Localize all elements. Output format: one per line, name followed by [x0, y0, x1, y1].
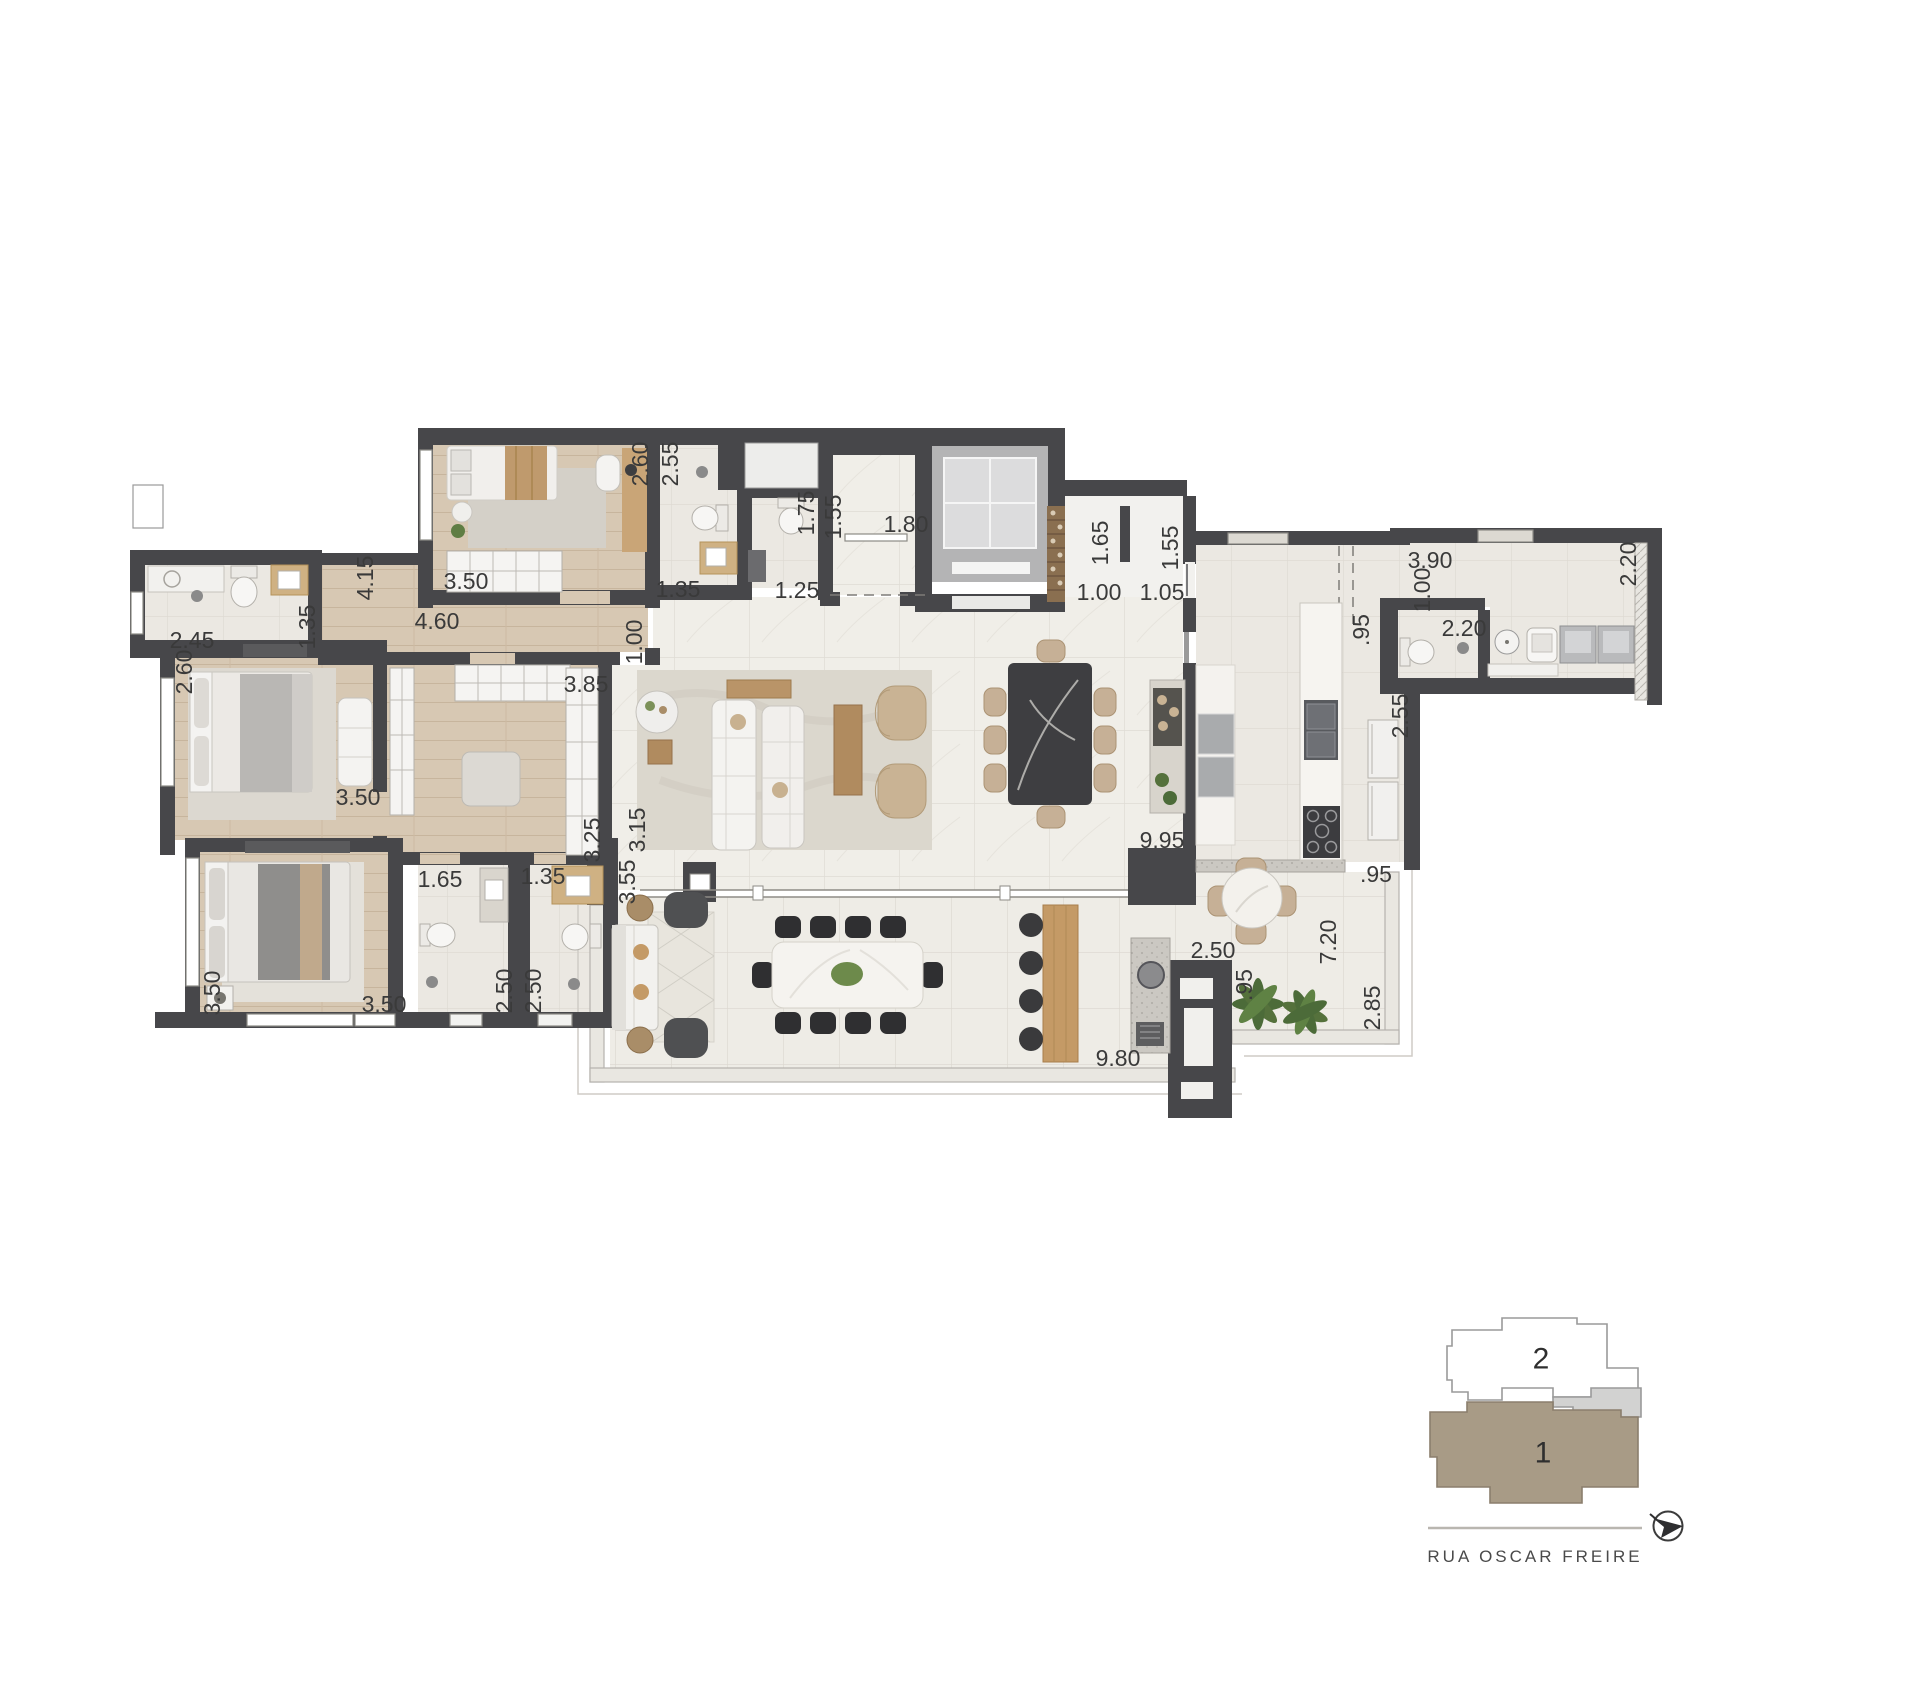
bed-throw — [300, 864, 322, 980]
outdoor-chair — [775, 1012, 801, 1034]
dim-label: 2.20 — [1615, 542, 1641, 587]
dim-label: 1.65 — [1087, 521, 1113, 566]
column-inset — [690, 874, 710, 890]
dim-label: 4.60 — [415, 608, 460, 634]
outdoor-chair — [845, 916, 871, 938]
pillow — [451, 450, 471, 471]
dim-label: 1.35 — [294, 605, 320, 650]
glass-partition — [1184, 632, 1189, 663]
dim-label: .95 — [1348, 614, 1374, 646]
street-name: RUA OSCAR FREIRE — [1427, 1547, 1642, 1566]
dim-label: 3.15 — [624, 808, 650, 853]
keyplan-unit-1-label: 1 — [1535, 1437, 1552, 1470]
bar-stool — [1019, 951, 1043, 975]
dim-label: 1.05 — [1140, 579, 1185, 605]
dim-label: 1.55 — [1157, 526, 1183, 571]
counter — [1196, 665, 1235, 845]
dim-label: 9.95 — [1140, 827, 1185, 853]
plant — [1155, 773, 1169, 787]
dim-label: 2.55 — [657, 442, 683, 487]
bbq-inset — [1181, 1082, 1213, 1099]
basin — [706, 548, 726, 566]
tv-dresser — [245, 841, 350, 853]
elevator-door — [952, 596, 1030, 609]
dining-chair — [984, 726, 1006, 754]
master-bedroom-furniture — [205, 841, 364, 1010]
living-room-furniture — [636, 670, 932, 850]
outdoor-chair — [810, 916, 836, 938]
dining-chair — [1094, 726, 1116, 754]
stool — [1198, 714, 1234, 754]
dim-label: 2.85 — [1359, 986, 1385, 1031]
shower-head — [696, 466, 708, 478]
dim-label: 3.25 — [579, 818, 605, 863]
dim-label: 1.00 — [1077, 579, 1122, 605]
keyplan-unit-2-label: 2 — [1533, 1343, 1550, 1376]
kitchen-sill — [1196, 860, 1345, 872]
toilet — [1408, 640, 1434, 664]
toilet — [427, 923, 455, 947]
armchair — [878, 686, 926, 740]
dim-label: 3.85 — [564, 671, 609, 697]
duct-shaft — [745, 443, 818, 488]
dim-label: 9.80 — [1096, 1045, 1141, 1071]
armchair — [878, 764, 926, 818]
outdoor-chair — [880, 916, 906, 938]
outdoor-chair — [810, 1012, 836, 1034]
round-table — [1222, 868, 1282, 928]
toilet — [562, 924, 588, 950]
outdoor-chair — [775, 916, 801, 938]
outdoor-chair — [845, 1012, 871, 1034]
bar-stool — [1019, 989, 1043, 1013]
sofa — [762, 706, 804, 848]
bbq-grill — [1138, 962, 1164, 988]
dim-label: 2.20 — [1442, 615, 1487, 641]
basin — [278, 571, 300, 589]
vanity-cabinet — [748, 550, 766, 582]
pillow — [633, 984, 649, 1000]
bar-stool — [1019, 1027, 1043, 1051]
keyplan: 2 1 RUA OSCAR FREIRE — [1427, 1318, 1683, 1566]
dim-label: 4.15 — [352, 556, 378, 601]
throw-pillow — [730, 714, 746, 730]
shower-head — [191, 590, 203, 602]
floor-plan-page: 2.45 1.35 2.60 4.15 4.60 3.50 2.60 2.55 … — [0, 0, 1920, 1692]
dining-chair — [984, 764, 1006, 792]
bbq-inset — [1184, 1008, 1213, 1066]
console-table — [727, 680, 791, 698]
plant — [1163, 791, 1177, 805]
elevator-handrail — [952, 562, 1030, 574]
pouf — [452, 502, 472, 522]
outdoor-chair — [880, 1012, 906, 1034]
dim-label: 2.55 — [1387, 694, 1413, 739]
bbq-inset — [1180, 978, 1213, 999]
dim-label: 1.80 — [884, 511, 929, 537]
dim-label: 2.50 — [520, 969, 546, 1014]
dining-chair — [1094, 688, 1116, 716]
dining-chair — [1037, 806, 1065, 828]
pillow — [633, 944, 649, 960]
shower-head — [426, 976, 438, 988]
dim-label: 2.50 — [491, 969, 517, 1014]
pillow — [451, 474, 471, 495]
dim-label: 1.00 — [1409, 568, 1435, 613]
toilet — [692, 506, 718, 530]
dim-label: 2.45 — [170, 627, 215, 653]
dining-chair — [1037, 640, 1065, 662]
pantry — [1047, 506, 1065, 602]
dim-label: 1.00 — [621, 620, 647, 665]
centerpiece — [831, 962, 863, 986]
tray-table — [648, 740, 672, 764]
basin — [485, 880, 503, 900]
vanity — [148, 566, 224, 592]
coffee-table — [834, 705, 862, 795]
dim-label: 2.60 — [627, 442, 653, 487]
toilet-cistern — [231, 566, 257, 578]
dim-label: 2.50 — [1191, 937, 1236, 963]
buffet-tray — [1153, 688, 1182, 746]
bar-stool — [1019, 913, 1043, 937]
bed-throw — [505, 446, 547, 500]
elevator — [932, 446, 1048, 609]
outdoor-chair — [921, 962, 943, 988]
dim-label: 1.55 — [820, 495, 846, 540]
laundry-counter — [1488, 664, 1558, 676]
outdoor-armchair — [664, 892, 708, 928]
round-side-table — [636, 691, 678, 733]
dim-label: 3.50 — [336, 784, 381, 810]
shower-head — [568, 978, 580, 990]
bed-blanket — [240, 674, 292, 792]
stool — [1198, 757, 1234, 797]
dim-label: 7.20 — [1315, 920, 1341, 965]
dim-label: 3.50 — [199, 971, 225, 1016]
dim-label: 3.50 — [362, 991, 407, 1017]
compass-icon — [1650, 1512, 1683, 1541]
basin — [566, 876, 590, 896]
dim-label: .95 — [1360, 861, 1392, 887]
bar-counter — [1043, 905, 1078, 1062]
dining-chair — [1094, 764, 1116, 792]
toilet-cistern — [590, 924, 601, 948]
plant — [451, 524, 465, 538]
dim-label: 3.50 — [444, 568, 489, 594]
throw-pillow — [772, 782, 788, 798]
toilet — [231, 577, 257, 607]
dining-chair — [984, 688, 1006, 716]
dim-label: .95 — [1231, 969, 1257, 1001]
bench — [338, 698, 372, 786]
dim-label: 1.65 — [418, 866, 463, 892]
floor-plan-canvas: 2.45 1.35 2.60 4.15 4.60 3.50 2.60 2.55 … — [0, 0, 1920, 1692]
dim-label: 1.35 — [521, 863, 566, 889]
outdoor-armchair — [664, 1018, 708, 1058]
dim-label: 3.55 — [614, 860, 640, 905]
outdoor-chair — [752, 962, 774, 988]
side-table — [627, 1027, 653, 1053]
shower-head — [1457, 642, 1469, 654]
desk-chair — [596, 455, 620, 491]
dim-label: 1.75 — [793, 491, 819, 536]
ottoman — [462, 752, 520, 806]
dim-label: 1.25 — [775, 577, 820, 603]
dim-label: 1.35 — [656, 576, 701, 602]
dim-label: 2.60 — [171, 650, 197, 695]
